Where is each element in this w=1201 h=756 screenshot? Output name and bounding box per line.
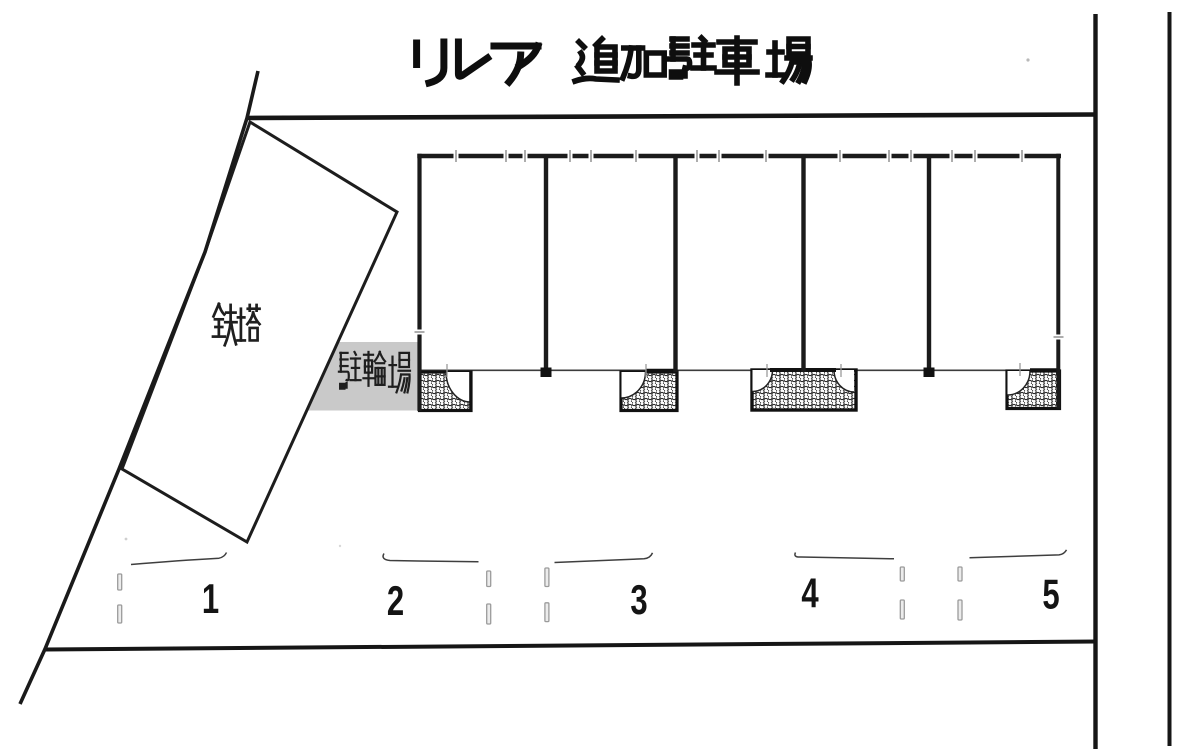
svg-text:4: 4	[801, 570, 819, 617]
svg-text:5: 5	[1042, 571, 1059, 618]
svg-text:3: 3	[630, 576, 647, 623]
svg-text:2: 2	[387, 577, 404, 624]
svg-text:1: 1	[202, 575, 219, 622]
